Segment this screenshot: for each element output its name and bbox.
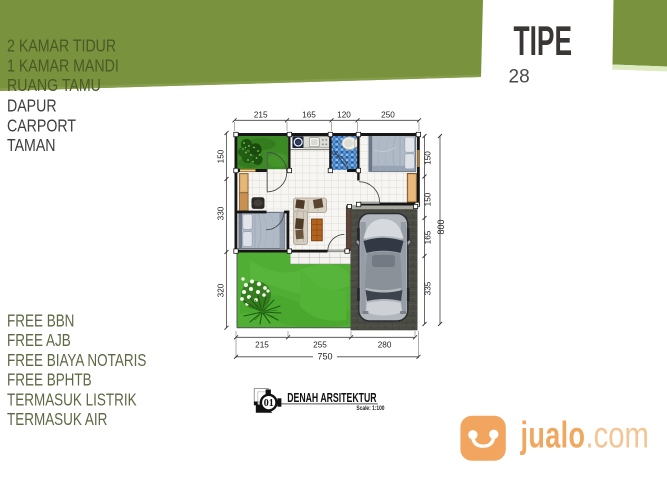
svg-text:330: 330	[217, 206, 226, 220]
svg-text:DAPUR: DAPUR	[7, 97, 57, 116]
svg-text:150: 150	[424, 192, 433, 206]
svg-text:jualo: jualo	[520, 414, 586, 455]
svg-text:1 KAMAR MANDI: 1 KAMAR MANDI	[7, 57, 119, 76]
svg-text:FREE BBN: FREE BBN	[7, 312, 74, 331]
svg-text:FREE AJB: FREE AJB	[7, 332, 71, 351]
svg-text:TERMASUK LISTRIK: TERMASUK LISTRIK	[7, 391, 137, 410]
svg-text:255: 255	[313, 341, 327, 350]
svg-text:250: 250	[381, 110, 395, 119]
svg-text:335: 335	[424, 281, 433, 295]
svg-text:RUANG TAMU: RUANG TAMU	[7, 77, 101, 96]
svg-text:CARPORT: CARPORT	[7, 117, 76, 136]
svg-text:120: 120	[337, 110, 351, 119]
svg-text:01: 01	[264, 398, 274, 409]
svg-text:165: 165	[424, 230, 433, 244]
svg-text:150: 150	[424, 151, 433, 165]
svg-text:Scale: 1:100: Scale: 1:100	[356, 405, 384, 412]
svg-text:TERMASUK AIR: TERMASUK AIR	[7, 411, 107, 430]
svg-text:165: 165	[302, 110, 316, 119]
svg-text:TIPE: TIPE	[514, 18, 573, 65]
svg-text:215: 215	[254, 110, 268, 119]
svg-text:TAMAN: TAMAN	[7, 137, 56, 156]
svg-text:215: 215	[255, 341, 269, 350]
svg-text:FREE BIAYA NOTARIS: FREE BIAYA NOTARIS	[7, 351, 146, 370]
svg-text:800: 800	[436, 219, 446, 234]
svg-text:FREE BPHTB: FREE BPHTB	[7, 371, 92, 390]
svg-text:DENAH ARSITEKTUR: DENAH ARSITEKTUR	[287, 391, 376, 405]
svg-text:150: 150	[217, 149, 226, 163]
svg-text:28: 28	[509, 67, 530, 88]
svg-text:2 KAMAR TIDUR: 2 KAMAR TIDUR	[7, 37, 116, 56]
svg-text:.com: .com	[586, 415, 649, 456]
svg-text:280: 280	[378, 341, 392, 350]
svg-text:750: 750	[317, 351, 332, 361]
svg-text:320: 320	[217, 283, 226, 297]
